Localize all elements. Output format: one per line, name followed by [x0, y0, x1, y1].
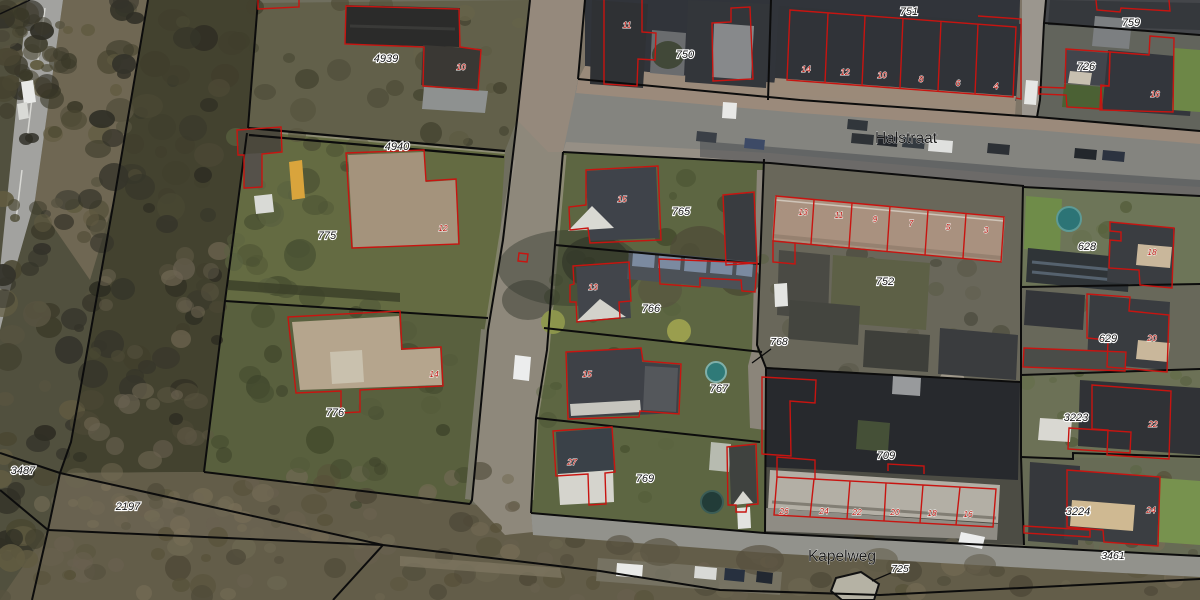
- svg-text:Halstraat: Halstraat: [875, 130, 938, 147]
- svg-text:4939: 4939: [374, 53, 398, 65]
- svg-text:22: 22: [1147, 419, 1158, 429]
- svg-text:10: 10: [456, 62, 466, 72]
- svg-text:11: 11: [835, 210, 844, 220]
- svg-text:16: 16: [1150, 89, 1160, 99]
- svg-text:16: 16: [963, 509, 973, 519]
- svg-text:3: 3: [984, 225, 989, 235]
- svg-text:725: 725: [891, 563, 909, 575]
- svg-text:22: 22: [851, 507, 862, 517]
- svg-text:765: 765: [672, 206, 691, 218]
- svg-text:759: 759: [1122, 17, 1140, 29]
- svg-text:4940: 4940: [385, 141, 410, 153]
- svg-text:3223: 3223: [1064, 412, 1089, 424]
- svg-text:18: 18: [1147, 247, 1157, 257]
- svg-text:6: 6: [956, 78, 961, 88]
- svg-text:18: 18: [927, 508, 937, 518]
- svg-text:751: 751: [900, 6, 918, 18]
- svg-text:5: 5: [946, 222, 951, 232]
- svg-text:12: 12: [840, 67, 850, 77]
- svg-text:20: 20: [1146, 333, 1157, 343]
- svg-text:768: 768: [770, 336, 788, 348]
- svg-text:752: 752: [876, 276, 894, 288]
- svg-text:3224: 3224: [1066, 506, 1090, 518]
- svg-text:9: 9: [873, 214, 878, 224]
- svg-text:14: 14: [429, 369, 439, 379]
- svg-text:628: 628: [1078, 241, 1097, 253]
- svg-text:4: 4: [994, 81, 999, 91]
- svg-text:24: 24: [1145, 505, 1156, 515]
- svg-text:726: 726: [1077, 61, 1096, 73]
- svg-text:10: 10: [877, 70, 887, 80]
- svg-text:12: 12: [438, 223, 448, 233]
- svg-text:629: 629: [1099, 333, 1117, 345]
- svg-text:766: 766: [642, 303, 661, 315]
- svg-text:14: 14: [801, 64, 811, 74]
- svg-text:20: 20: [889, 507, 900, 517]
- svg-text:3487: 3487: [11, 465, 36, 477]
- svg-text:11: 11: [623, 20, 632, 30]
- svg-text:15: 15: [617, 194, 627, 204]
- svg-text:775: 775: [318, 230, 337, 242]
- svg-text:26: 26: [778, 506, 789, 516]
- svg-text:709: 709: [877, 450, 895, 462]
- svg-text:24: 24: [818, 506, 829, 516]
- svg-text:Kapelweg: Kapelweg: [808, 548, 876, 565]
- svg-text:13: 13: [588, 282, 598, 292]
- svg-text:27: 27: [566, 457, 577, 467]
- svg-text:15: 15: [582, 369, 592, 379]
- svg-text:7: 7: [909, 218, 914, 228]
- svg-text:3461: 3461: [1101, 550, 1124, 562]
- svg-text:776: 776: [326, 407, 345, 419]
- svg-text:8: 8: [919, 74, 924, 84]
- svg-text:767: 767: [710, 383, 729, 395]
- svg-text:769: 769: [636, 473, 654, 485]
- svg-text:2197: 2197: [115, 501, 141, 513]
- svg-text:13: 13: [798, 207, 808, 217]
- svg-text:750: 750: [676, 49, 695, 61]
